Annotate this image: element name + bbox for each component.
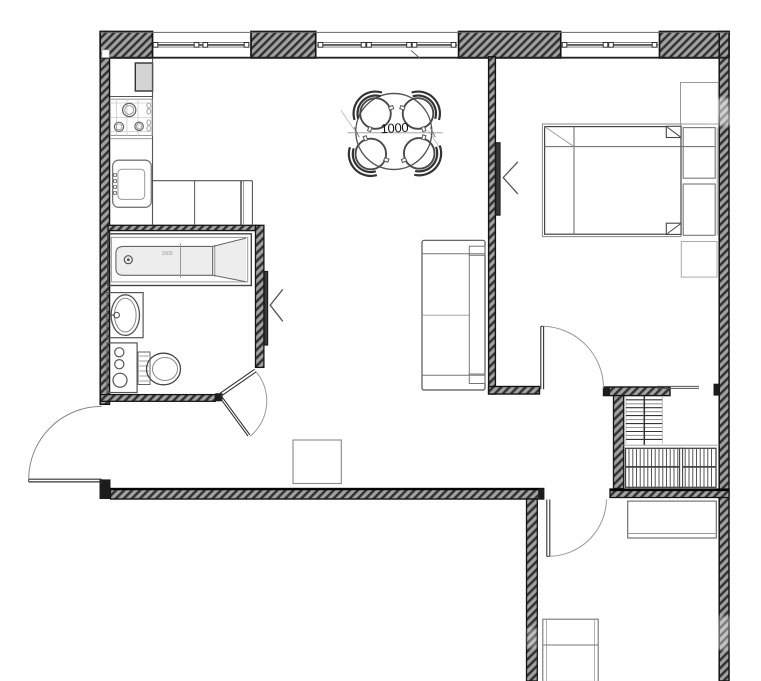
svg-text:1600: 1600 [161,251,172,257]
svg-text:1000: 1000 [380,120,409,136]
